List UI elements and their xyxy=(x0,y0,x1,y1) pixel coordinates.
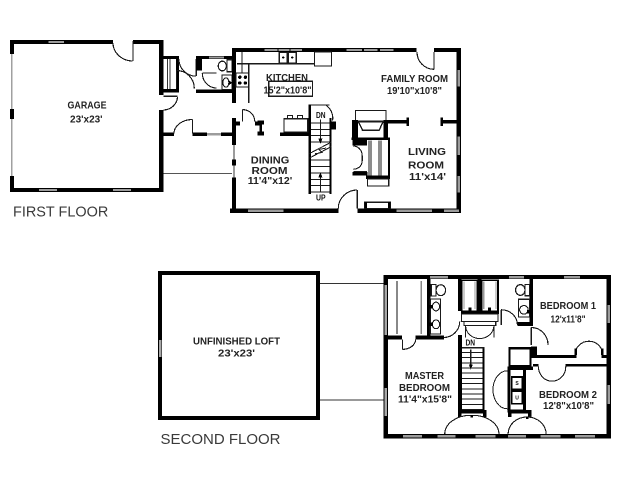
svg-text:MASTER: MASTER xyxy=(405,370,444,382)
svg-text:15'2"x10'8": 15'2"x10'8" xyxy=(264,84,312,96)
svg-text:19'10"x10'8": 19'10"x10'8" xyxy=(387,85,442,97)
svg-text:12'x11'8": 12'x11'8" xyxy=(551,314,586,326)
svg-text:ROOM: ROOM xyxy=(408,160,444,172)
svg-text:FIRST FLOOR: FIRST FLOOR xyxy=(13,205,108,221)
svg-text:UNFINISHED LOFT: UNFINISHED LOFT xyxy=(193,336,281,348)
svg-text:23'x23': 23'x23' xyxy=(70,114,103,126)
svg-text:GARAGE: GARAGE xyxy=(68,100,107,112)
svg-text:12'8"x10'8": 12'8"x10'8" xyxy=(543,400,594,412)
svg-text:11'4"x12': 11'4"x12' xyxy=(248,175,293,187)
svg-text:KITCHEN: KITCHEN xyxy=(266,72,308,84)
svg-text:23'x23': 23'x23' xyxy=(218,348,255,360)
svg-text:SECOND FLOOR: SECOND FLOOR xyxy=(161,432,281,448)
svg-text:U: U xyxy=(515,396,519,402)
svg-text:BEDROOM 1: BEDROOM 1 xyxy=(540,300,596,312)
svg-text:DN: DN xyxy=(466,338,476,347)
svg-text:DN: DN xyxy=(316,111,326,120)
svg-text:UP: UP xyxy=(316,194,326,203)
svg-text:BEDROOM: BEDROOM xyxy=(399,382,450,394)
svg-text:11'x14': 11'x14' xyxy=(409,171,446,183)
svg-text:LIVING: LIVING xyxy=(408,146,446,158)
svg-text:FAMILY ROOM: FAMILY ROOM xyxy=(381,73,448,85)
svg-text:11'4"x15'8": 11'4"x15'8" xyxy=(398,394,452,406)
